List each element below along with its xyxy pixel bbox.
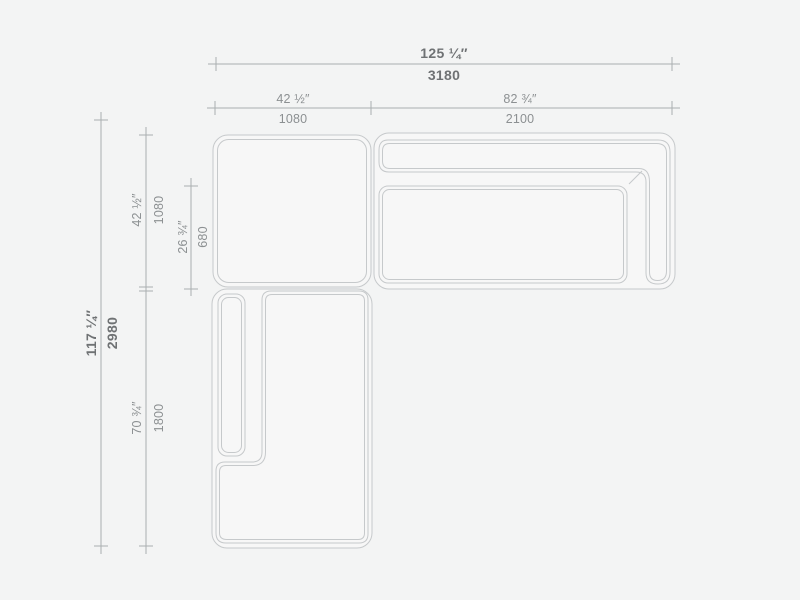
seat-depth-mm-label: 680	[196, 226, 210, 247]
ottoman-outline	[213, 135, 371, 287]
drawing-background	[0, 0, 800, 600]
chaise-armrest	[218, 294, 245, 456]
ottoman-module	[213, 135, 371, 287]
left-section-width-mm-label: 1080	[279, 112, 308, 126]
seat-depth-inches-label: 26 ¾″	[176, 220, 190, 254]
overall-depth-mm-label: 2980	[104, 317, 120, 349]
left-section-width-inches-label: 42 ½″	[276, 92, 310, 106]
right-section-width-mm-label: 2100	[506, 112, 535, 126]
right-section-width-inches-label: 82 ¾″	[503, 92, 537, 106]
sofa-dimension-drawing: 125 ¼″ 3180 117 ¼″ 2980 42 ½″ 1080 82 ¾″…	[0, 0, 800, 600]
overall-depth-inches-label: 117 ¼″	[83, 310, 99, 357]
overall-width-mm-label: 3180	[428, 67, 460, 83]
top-section-depth-inches-label: 42 ½″	[130, 193, 144, 227]
chaise-module	[212, 289, 372, 548]
right-sofa-module	[374, 133, 675, 289]
overall-width-inches-label: 125 ¼″	[420, 45, 467, 61]
chaise-length-mm-label: 1800	[152, 404, 166, 433]
right-seat-cushion	[379, 186, 627, 283]
chaise-length-inches-label: 70 ¾″	[130, 401, 144, 435]
top-section-depth-mm-label: 1080	[152, 196, 166, 225]
